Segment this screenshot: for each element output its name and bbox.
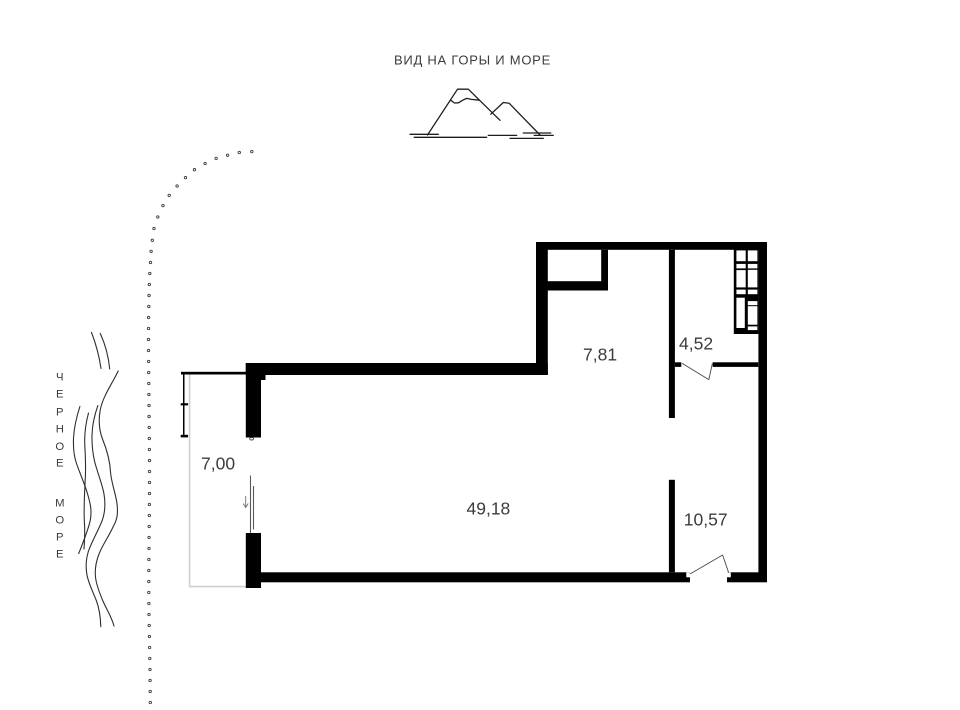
svg-text:Р: Р: [56, 532, 64, 544]
svg-text:Р: Р: [56, 406, 64, 418]
svg-text:ВИД НА ГОРЫ И МОРЕ: ВИД НА ГОРЫ И МОРЕ: [394, 53, 551, 68]
svg-text:Е: Е: [56, 549, 64, 561]
svg-text:О: О: [55, 515, 64, 527]
svg-text:10,57: 10,57: [684, 510, 728, 530]
svg-text:7,00: 7,00: [201, 454, 235, 474]
svg-text:О: О: [55, 441, 64, 453]
svg-text:4,52: 4,52: [679, 334, 713, 354]
svg-text:М: М: [55, 497, 64, 509]
svg-text:Е: Е: [56, 457, 64, 469]
svg-text:49,18: 49,18: [467, 499, 511, 519]
svg-text:Е: Е: [56, 389, 64, 401]
svg-text:Н: Н: [56, 424, 64, 436]
svg-text:Ч: Ч: [56, 371, 64, 383]
svg-text:7,81: 7,81: [583, 345, 617, 365]
